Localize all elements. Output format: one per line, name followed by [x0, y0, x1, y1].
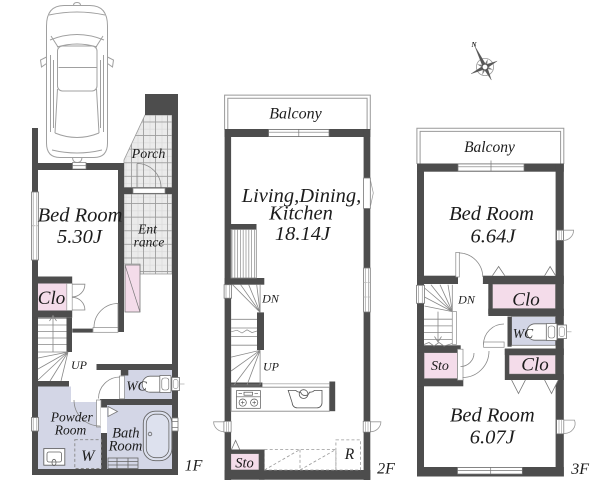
svg-text:DN: DN	[261, 292, 280, 306]
svg-text:Bed Room: Bed Room	[450, 405, 535, 427]
svg-text:Bed Room: Bed Room	[38, 205, 123, 227]
svg-text:WC: WC	[513, 326, 534, 341]
svg-text:UP: UP	[71, 358, 88, 372]
svg-text:2F: 2F	[377, 461, 395, 478]
svg-text:Balcony: Balcony	[269, 106, 322, 123]
svg-text:1F: 1F	[185, 458, 203, 475]
svg-text:Room: Room	[108, 439, 143, 455]
svg-text:3F: 3F	[570, 461, 589, 478]
svg-text:Clo: Clo	[512, 290, 539, 311]
svg-text:WC: WC	[126, 379, 147, 394]
svg-text:5.30J: 5.30J	[57, 226, 103, 248]
svg-text:Sto: Sto	[431, 359, 449, 374]
svg-text:Bed Room: Bed Room	[449, 203, 534, 225]
svg-text:Porch: Porch	[131, 147, 166, 162]
svg-text:Kitchen: Kitchen	[268, 203, 333, 225]
svg-text:6.07J: 6.07J	[470, 427, 516, 449]
svg-text:N: N	[470, 41, 477, 49]
svg-text:Balcony: Balcony	[464, 139, 515, 156]
svg-text:rance: rance	[134, 235, 165, 250]
svg-text:W: W	[81, 448, 96, 465]
svg-text:Clo: Clo	[38, 288, 65, 309]
svg-text:6.64J: 6.64J	[471, 226, 517, 248]
svg-text:Room: Room	[54, 423, 87, 438]
svg-text:UP: UP	[263, 360, 280, 374]
svg-text:Sto: Sto	[235, 456, 254, 472]
svg-text:Clo: Clo	[521, 355, 548, 376]
svg-text:18.14J: 18.14J	[275, 223, 331, 245]
svg-text:DN: DN	[457, 293, 476, 307]
svg-text:R: R	[344, 446, 355, 463]
